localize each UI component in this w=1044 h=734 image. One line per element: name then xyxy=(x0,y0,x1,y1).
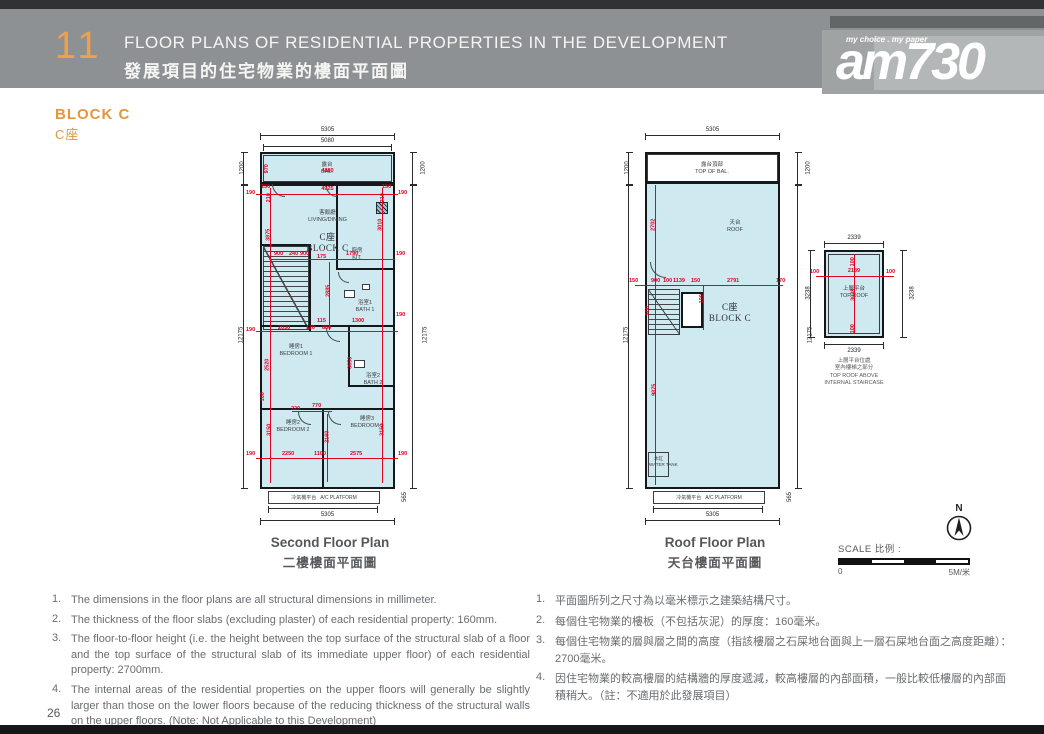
red-dim-label: 3150 xyxy=(267,424,273,436)
room-label-roof: 天台 ROOF xyxy=(710,220,760,234)
dimension-label: 5305 xyxy=(645,127,780,133)
red-dim-label: 3875 xyxy=(266,229,272,241)
red-dimension-line xyxy=(327,414,328,482)
red-dim-label: 150 xyxy=(629,279,638,285)
note-item: 3. The floor-to-floor height (i.e. the h… xyxy=(52,632,530,679)
dimension-label: 12175 xyxy=(238,327,244,344)
room-label-bath2: 浴室2 BATH 2 xyxy=(354,373,392,387)
room-label-bedroom2: 睡房2 BEDROOM 2 xyxy=(268,420,318,434)
top-roof-diagram: 2339 3238 3238 2339 上層平台 TOP ROOF 100 21… xyxy=(802,228,932,398)
red-dim-label: 770 xyxy=(312,404,321,410)
red-dim-label: 2575 xyxy=(350,452,362,458)
dimension-label: 5305 xyxy=(645,512,780,518)
ac-platform: 冷氣機平台 A/C PLATFORM xyxy=(268,491,380,504)
dimension-label: 2339 xyxy=(824,235,884,241)
red-dim-label: 900 xyxy=(651,279,660,285)
dimension-line xyxy=(824,344,884,345)
scale-label: SCALE 比例 : xyxy=(838,541,976,555)
red-dim-label: 2885 xyxy=(326,285,332,297)
red-dim-label: 2030 xyxy=(278,326,290,332)
red-dim-label: 4880 xyxy=(263,169,392,175)
water-tank: 水缸 WATER TANK xyxy=(648,452,669,477)
page-number: 26 xyxy=(47,706,60,720)
note-item: 3. 每個住宅物業的層與層之間的高度（指該樓層之石屎地台面與上一層石屎地台面之高… xyxy=(536,634,1012,667)
wall-segment xyxy=(262,408,395,410)
red-dim-label: 900 xyxy=(274,252,283,258)
second-floor-plan: 5305 5080 1200 12175 1200 12175 565 4450… xyxy=(230,122,430,537)
north-label: N xyxy=(941,503,977,514)
dimension-line xyxy=(645,520,780,521)
red-dim-label: 2791 xyxy=(727,279,739,285)
logo-wordmark: am730 xyxy=(836,32,983,92)
red-dim-label: 1790 xyxy=(346,252,358,258)
room-label-top-of-bal: 露台頂部 TOP OF BAL. xyxy=(681,162,743,176)
wall-segment xyxy=(322,410,324,489)
red-dim-label: 900 xyxy=(300,252,309,258)
dimension-label: 12175 xyxy=(623,327,629,344)
dimension-label: 5080 xyxy=(263,138,392,144)
dimension-label: 12175 xyxy=(422,327,428,344)
bath-fixture xyxy=(344,290,355,298)
note-item: 2. 每個住宅物業的樓板（不包括灰泥）的厚度：160毫米。 xyxy=(536,614,1012,631)
dimension-line xyxy=(260,135,395,136)
block-title-en: BLOCK C xyxy=(55,106,130,123)
red-dim-label: 170 xyxy=(776,279,785,285)
dimension-label: 5305 xyxy=(260,127,395,133)
dimension-line xyxy=(653,508,763,509)
red-dim-label: 190 xyxy=(246,191,255,197)
north-arrow-icon xyxy=(945,514,973,542)
red-dim-label: 190 xyxy=(396,313,405,319)
red-dim-label: 3150 xyxy=(380,424,386,436)
red-dim-label: 100 xyxy=(810,270,819,276)
note-item: 4. The internal areas of the residential… xyxy=(52,683,530,730)
red-dim-label: 150 xyxy=(691,279,700,285)
red-dim-label: 4925 xyxy=(263,187,392,193)
red-dim-label: 240 xyxy=(289,252,298,258)
section-number: 11 xyxy=(55,25,102,68)
am730-logo: my choice . my paper am730 xyxy=(822,8,1044,94)
red-dim-label: 190 xyxy=(246,452,255,458)
brochure-page: 11 FLOOR PLANS OF RESIDENTIAL PROPERTIES… xyxy=(0,0,1044,734)
red-dim-label: 9875 xyxy=(652,384,658,396)
dimension-line xyxy=(412,152,413,185)
red-dim-label: 900 xyxy=(646,306,652,315)
dimension-line xyxy=(263,146,392,147)
scale-bar-graphic xyxy=(838,558,970,565)
red-dim-label: 100 xyxy=(700,294,706,303)
red-dim-label: 3038 xyxy=(851,289,857,301)
notes-chinese: 1. 平面圖所列之尺寸為以毫米標示之建築結構尺寸。 2. 每個住宅物業的樓板（不… xyxy=(536,593,1012,708)
red-dim-label: 3010 xyxy=(378,219,384,231)
dimension-label: 3238 xyxy=(910,286,916,299)
red-dim-label: 1300 xyxy=(352,319,364,325)
scale-bar: SCALE 比例 : 0 5M/米 xyxy=(838,541,976,567)
dimension-label: 2339 xyxy=(824,348,884,354)
logo-band-dark xyxy=(830,16,1044,28)
room-label-bath1: 浴室1 BATH 1 xyxy=(350,300,380,314)
red-dim-label: 100 xyxy=(851,257,857,266)
wall-segment xyxy=(309,244,311,332)
ac-platform: 冷氣機平台 A/C PLATFORM xyxy=(653,491,765,504)
dimension-label: 5305 xyxy=(260,512,395,518)
dimension-label: 3238 xyxy=(806,286,812,299)
red-dim-label: 110 xyxy=(306,326,315,332)
red-dim-label: 1100 xyxy=(314,452,326,458)
notes-english: 1. The dimensions in the floor plans are… xyxy=(52,593,530,734)
dimension-line xyxy=(824,243,884,244)
red-dim-label: 190 xyxy=(396,252,405,258)
red-dim-label: 2520 xyxy=(265,359,271,371)
roof-floor-caption: Roof Floor Plan 天台樓面平面圖 xyxy=(635,535,795,571)
room-label-living: 客飯廳 LIVING/DINING xyxy=(290,210,365,224)
page-title-zh: 發展項目的住宅物業的樓面平面圖 xyxy=(124,57,409,82)
red-dimension-line xyxy=(816,276,894,277)
second-floor-caption: Second Floor Plan 二樓樓面平面圖 xyxy=(250,535,410,571)
red-dimension-line xyxy=(270,259,395,260)
red-dim-label: 1139 xyxy=(673,279,685,285)
note-item: 4. 因住宅物業的較高樓層的結構牆的厚度遞減，較高樓層的內部面積，一般比較低樓層… xyxy=(536,671,1012,704)
note-item: 2. The thickness of the floor slabs (exc… xyxy=(52,613,530,629)
red-dimension-line xyxy=(703,285,704,330)
roof-floor-plan: 5305 1200 12175 1200 12175 565 4450 5305… xyxy=(615,122,815,537)
dimension-label: 1200 xyxy=(421,161,427,174)
dimension-line xyxy=(260,520,395,521)
block-title-zh: C座 xyxy=(55,124,79,143)
red-dim-label: 190 xyxy=(398,191,407,197)
red-dim-label: 100 xyxy=(851,324,857,333)
dimension-label: 1200 xyxy=(806,161,812,174)
red-dim-label: 2139 xyxy=(830,269,878,275)
red-dim-label: 220 xyxy=(291,407,300,413)
staircase-diagonal xyxy=(648,289,680,335)
red-dim-label: 190 xyxy=(398,452,407,458)
red-dim-label: 2702 xyxy=(651,219,657,231)
dimension-label: 1200 xyxy=(625,161,631,174)
red-dim-label: 880 xyxy=(322,326,331,332)
red-dimension-line xyxy=(382,188,383,483)
red-dim-label: 3650 xyxy=(348,357,354,369)
red-dimension-line xyxy=(635,285,783,286)
red-dim-label: 100 xyxy=(663,279,672,285)
dimension-line xyxy=(902,250,903,338)
dimension-line xyxy=(412,185,413,489)
red-dim-label: 115 xyxy=(317,319,326,325)
bath-fixture xyxy=(354,360,365,368)
red-dim-label: 175 xyxy=(317,255,326,261)
note-item: 1. 平面圖所列之尺寸為以毫米標示之建築結構尺寸。 xyxy=(536,593,1012,610)
red-dim-label: 210 xyxy=(381,193,387,202)
unit-label: C座 BLOCK C xyxy=(695,300,765,323)
red-dim-label: 2160 xyxy=(325,431,331,443)
dimension-label: 565 xyxy=(787,492,793,502)
dimension-line xyxy=(797,185,798,489)
red-dim-label: 100 xyxy=(886,270,895,276)
bottom-black-bar xyxy=(0,725,1044,734)
dimension-label: 1200 xyxy=(240,161,246,174)
red-dim-label: 210 xyxy=(267,193,273,202)
dimension-line xyxy=(268,508,378,509)
wall-segment xyxy=(647,181,778,184)
note-item: 1. The dimensions in the floor plans are… xyxy=(52,593,530,609)
wall-segment xyxy=(336,268,395,270)
top-roof-caption: 上層平台位處 室內樓梯之部分 TOP ROOF ABOVE INTERNAL S… xyxy=(802,358,906,388)
dimension-label: 565 xyxy=(402,492,408,502)
red-dimension-line xyxy=(256,194,398,195)
red-dim-label: 190 xyxy=(246,328,255,334)
dimension-line xyxy=(797,152,798,185)
bath-fixture xyxy=(362,284,370,290)
red-dim-label: 2250 xyxy=(282,452,294,458)
page-title-en: FLOOR PLANS OF RESIDENTIAL PROPERTIES IN… xyxy=(124,33,728,53)
red-dim-label: 100 xyxy=(261,392,267,401)
room-label-bedroom1: 睡房1 BEDROOM 1 xyxy=(272,344,320,358)
wall-segment xyxy=(336,186,338,270)
dimension-line xyxy=(645,135,780,136)
